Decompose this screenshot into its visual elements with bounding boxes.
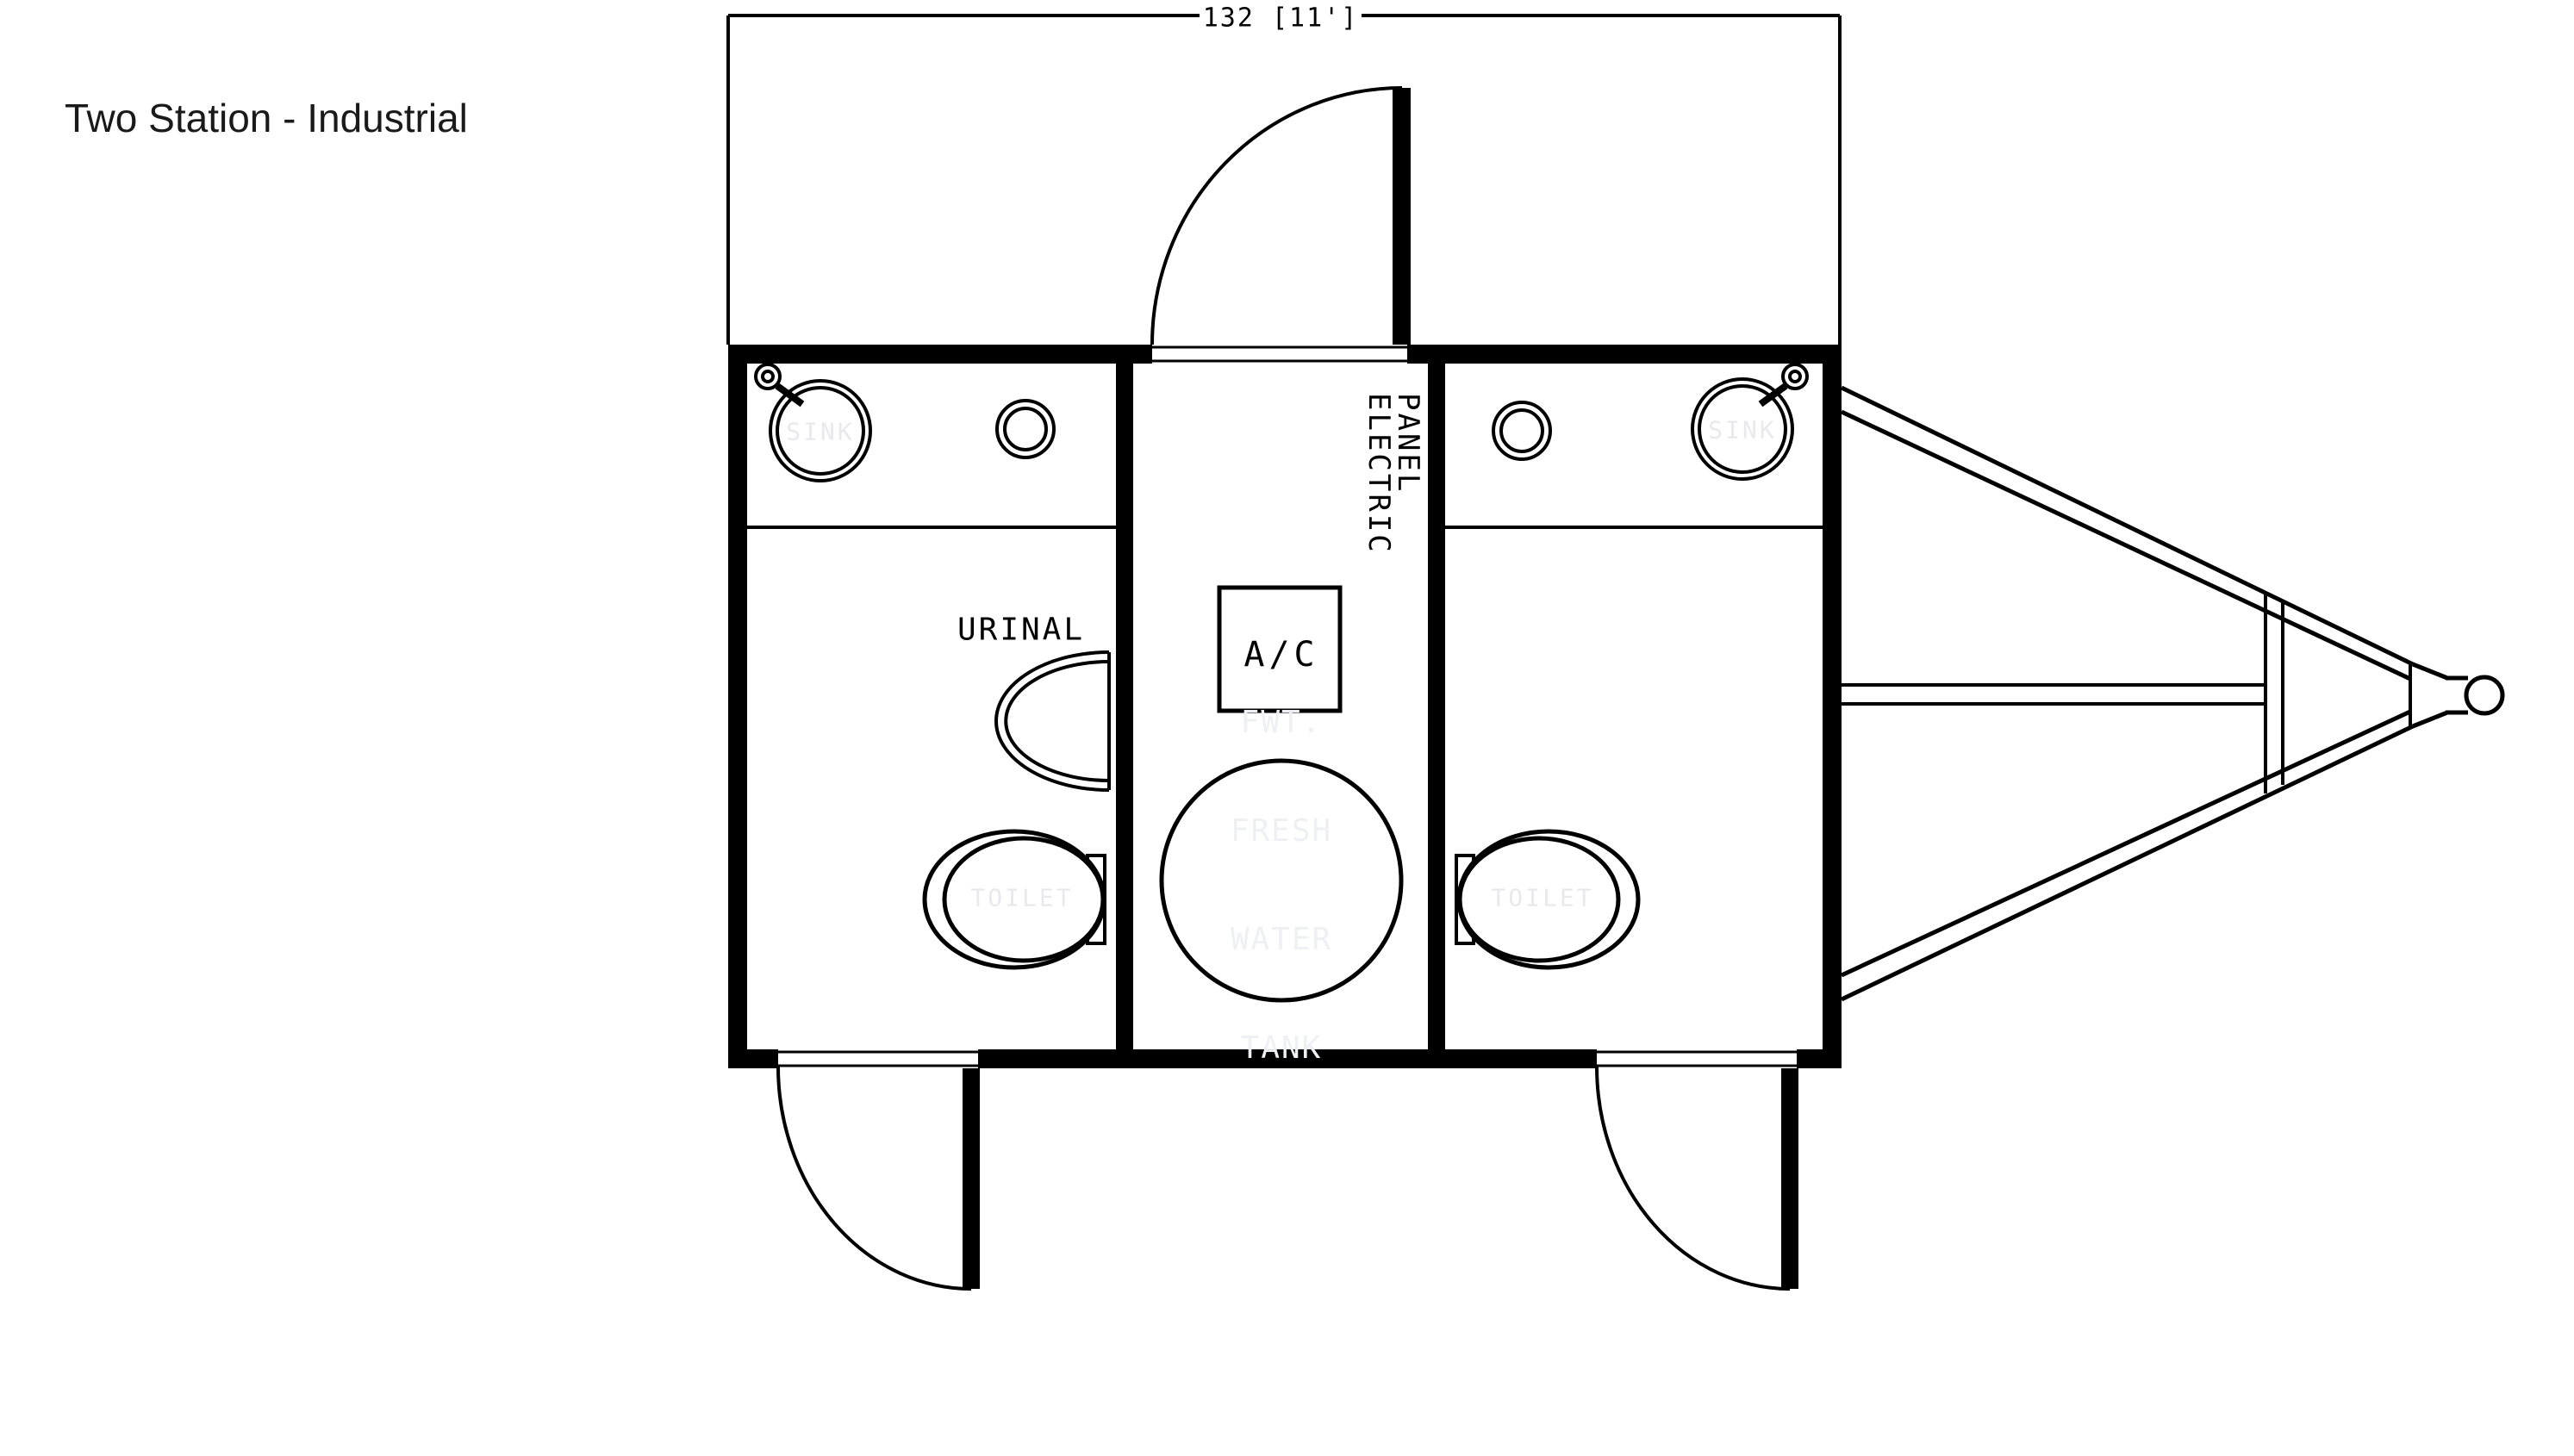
right-faucet-ring	[1783, 364, 1807, 389]
tank-label-line1: FWT.	[1231, 705, 1332, 741]
top-wall-left-segment	[728, 345, 1152, 364]
bottom-right-door-swing-arc	[1597, 1067, 1790, 1289]
tank-label-line2: FRESH	[1231, 813, 1332, 849]
bottom-left-door-sill	[778, 1051, 978, 1066]
bottom-right-door-leaf	[1781, 1068, 1798, 1289]
page-title: Two Station - Industrial	[65, 95, 468, 141]
deck-outline	[728, 16, 1840, 345]
tank-label-line3: WATER	[1231, 922, 1332, 958]
electric-panel-label-line1: ELECTRIC	[1364, 393, 1393, 555]
width-dimension-label: 132 [11']	[1203, 3, 1359, 34]
fresh-water-tank-label: FWT. FRESH WATER TANK	[1231, 632, 1332, 1139]
tongue-lower-beam-outer	[1842, 726, 2413, 999]
tongue-upper-beam-outer	[1842, 388, 2413, 664]
left-toilet-label: TOILET	[970, 884, 1073, 912]
tongue-neck-lower-taper	[2413, 712, 2447, 726]
right-sink-label: SINK	[1708, 416, 1776, 445]
urinal-fixture	[996, 652, 1109, 790]
right-wall	[1823, 345, 1842, 1068]
left-faucet-ring-inner	[763, 371, 773, 382]
floor-plan-page: Two Station - Industrial 132 [11'] URINA…	[0, 0, 2574, 1456]
left-sink-label: SINK	[786, 418, 854, 446]
left-faucet-ring	[756, 364, 780, 389]
tongue-neck-upper-taper	[2413, 664, 2447, 678]
right-counter-hole	[1493, 402, 1550, 459]
bottom-left-door-swing-arc	[778, 1067, 971, 1289]
trailer-tongue	[1842, 388, 2502, 999]
left-wall	[728, 345, 747, 1068]
top-door-leaf	[1393, 88, 1411, 345]
hitch-coupler	[2466, 677, 2502, 713]
left-counter-hole	[997, 401, 1054, 457]
left-partition-wall	[1116, 364, 1133, 1049]
right-toilet-label: TOILET	[1491, 884, 1593, 912]
bottom-left-door-leaf	[963, 1068, 980, 1289]
bottom-right-door-sill	[1597, 1051, 1797, 1066]
tank-label-line4: TANK	[1231, 1030, 1332, 1067]
bottom-wall-left-segment	[728, 1049, 778, 1068]
electric-panel-label-line2: PANEL	[1393, 393, 1423, 494]
right-faucet-ring-inner	[1790, 371, 1800, 382]
right-partition-wall	[1428, 364, 1445, 1049]
tongue-lower-beam-inner	[1842, 712, 2410, 975]
tongue-upper-beam-inner	[1842, 412, 2410, 679]
top-wall-right-segment	[1407, 345, 1840, 364]
bottom-wall-right-segment	[1797, 1049, 1842, 1068]
urinal-label: URINAL	[957, 613, 1085, 648]
top-door-swing-arc	[1152, 88, 1402, 345]
top-door-sill	[1152, 346, 1407, 361]
